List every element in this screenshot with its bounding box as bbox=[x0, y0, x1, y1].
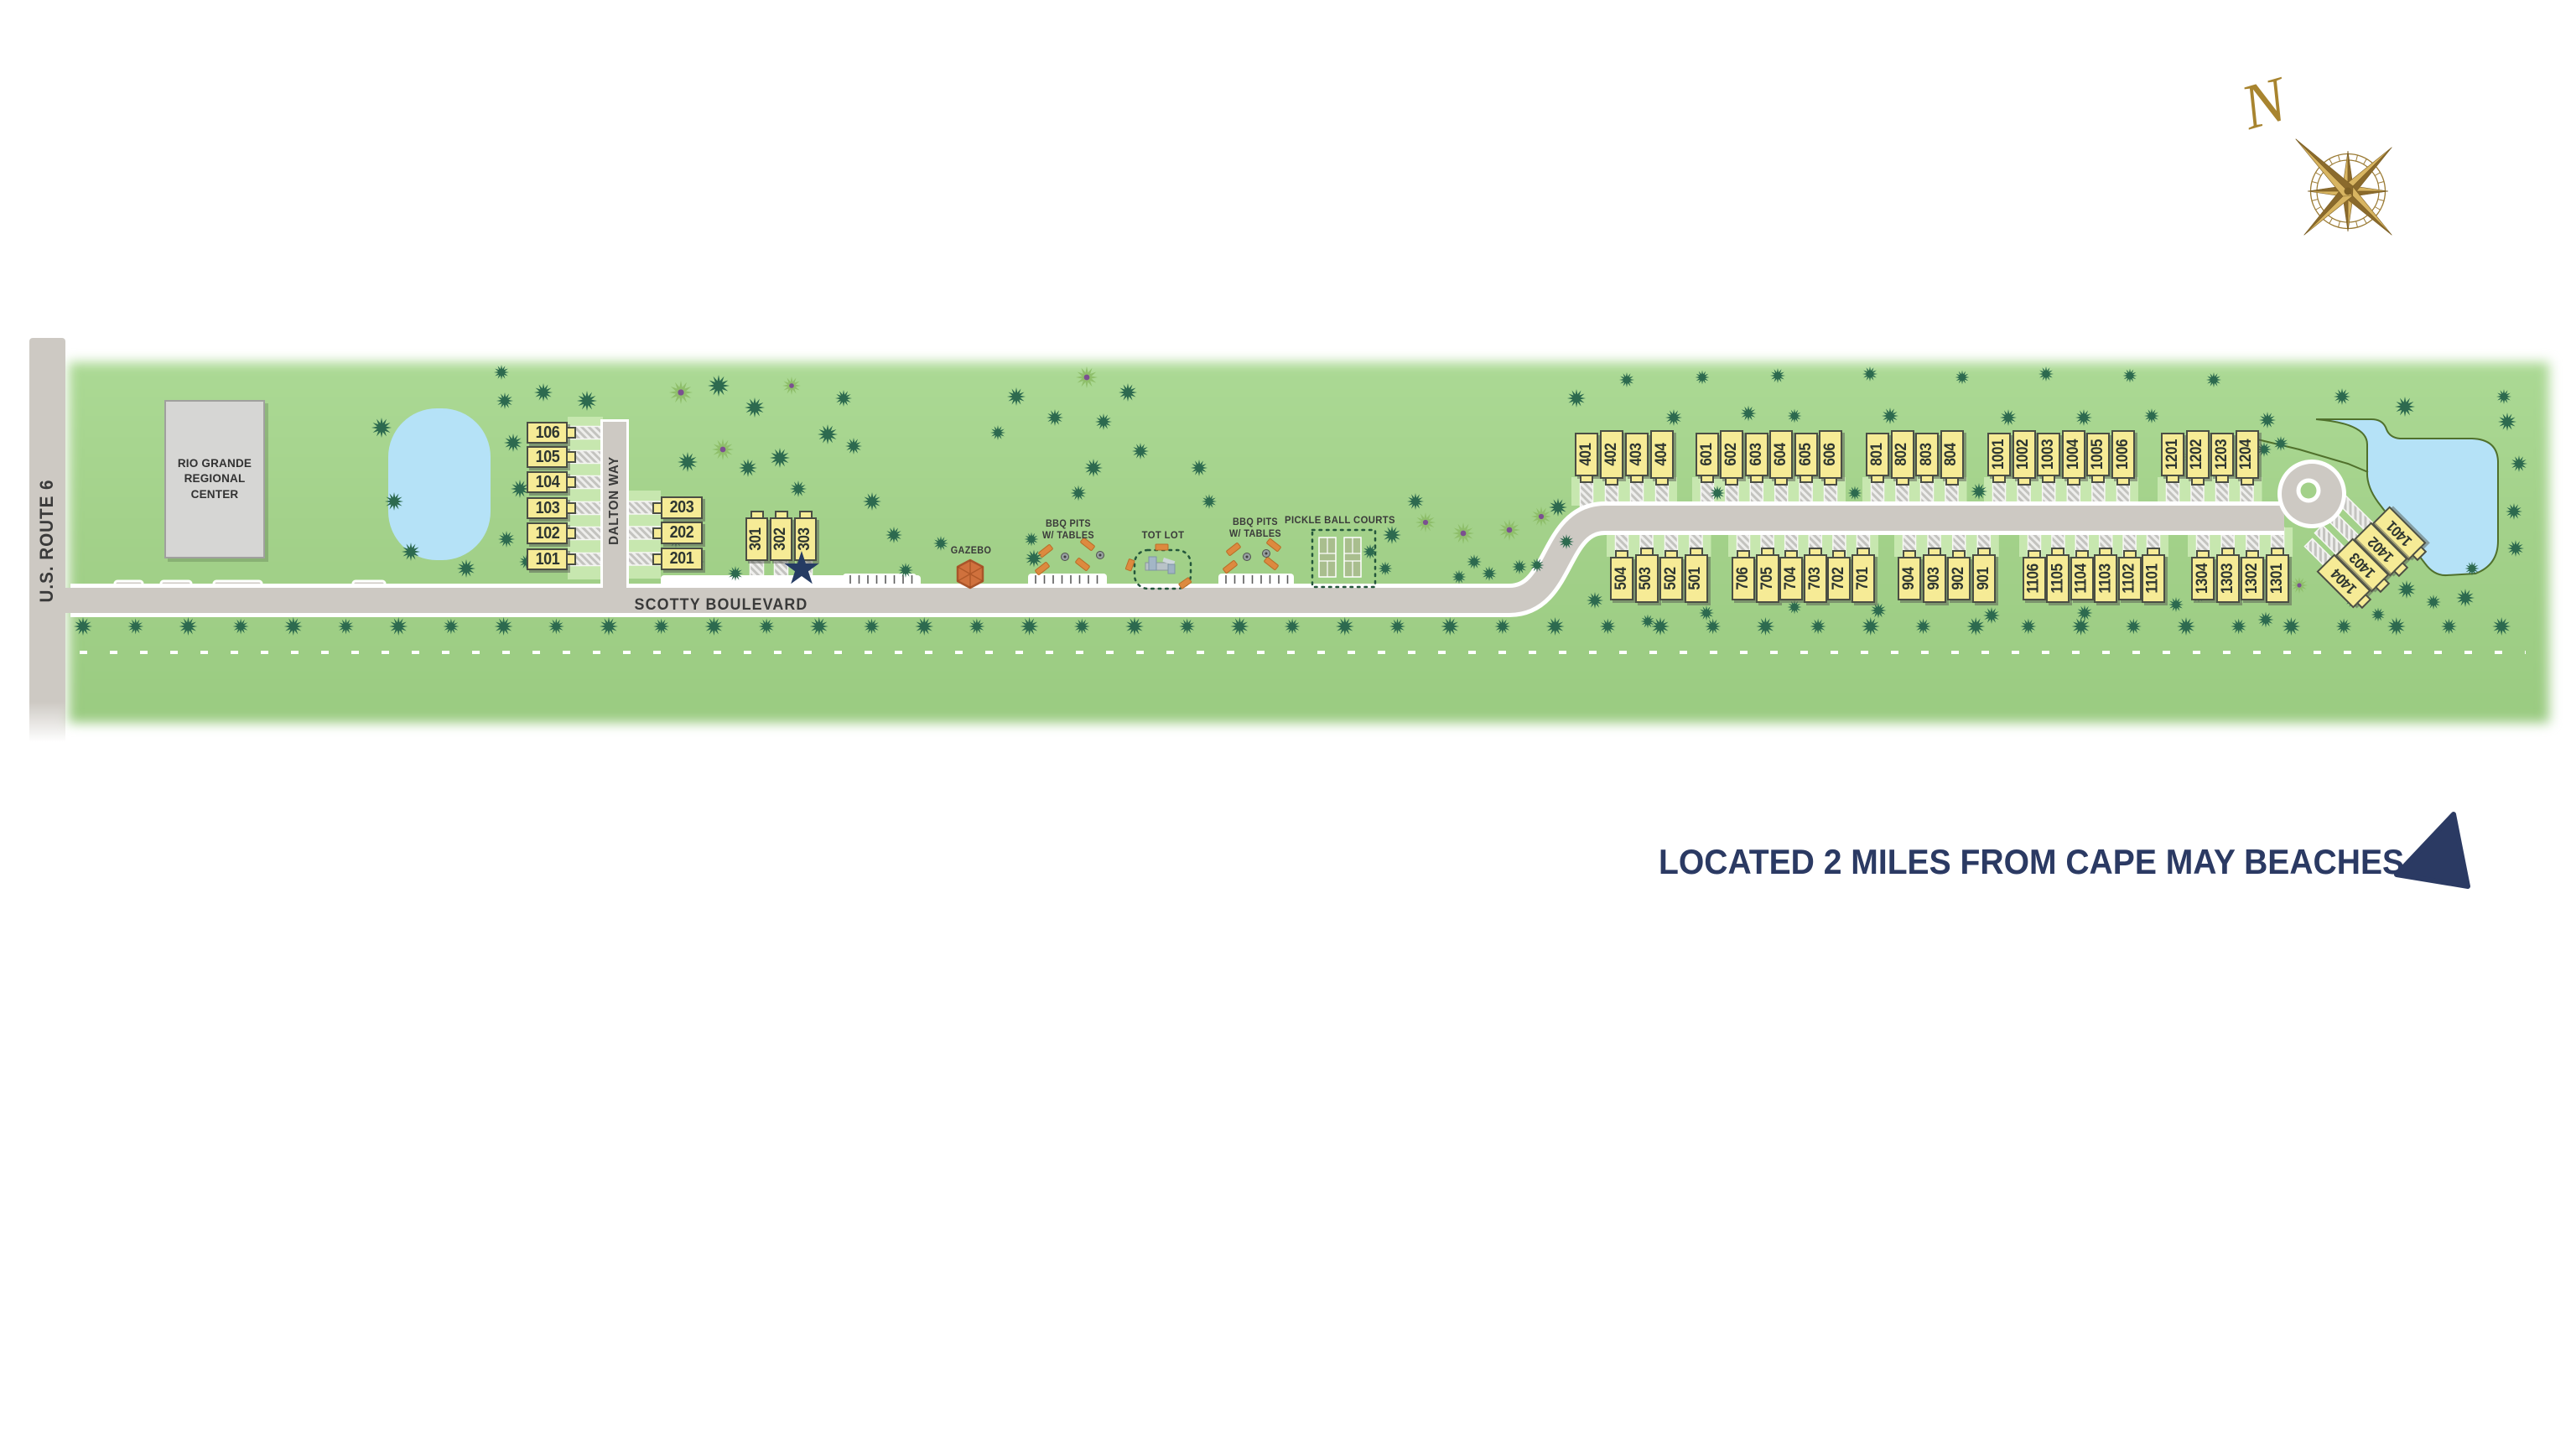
tree-icon bbox=[2258, 612, 2274, 628]
lot-101[interactable]: 101 bbox=[527, 548, 568, 570]
tree-icon bbox=[2496, 389, 2511, 404]
building-label: RIO GRANDE bbox=[178, 456, 252, 471]
tree-icon bbox=[1871, 603, 1887, 619]
lot-501[interactable]: 501 bbox=[1685, 554, 1708, 603]
lot-706[interactable]: 706 bbox=[1732, 557, 1755, 600]
lot-504[interactable]: 504 bbox=[1610, 557, 1633, 600]
lot-702[interactable]: 702 bbox=[1827, 557, 1851, 600]
tree-icon bbox=[845, 438, 862, 454]
tree-icon bbox=[739, 459, 757, 477]
tree-icon bbox=[2397, 580, 2416, 599]
lot-number: 1102 bbox=[2121, 563, 2139, 593]
lot-1204[interactable]: 1204 bbox=[2236, 430, 2259, 479]
tree-icon bbox=[2126, 619, 2142, 635]
lot-number: 903 bbox=[1925, 567, 1944, 589]
lot-503[interactable]: 503 bbox=[1635, 554, 1659, 603]
tree-icon bbox=[745, 397, 765, 418]
lot-601[interactable]: 601 bbox=[1696, 433, 1719, 476]
tree-icon bbox=[1512, 559, 1527, 574]
tree-icon bbox=[389, 617, 408, 636]
tree-icon bbox=[371, 418, 392, 438]
tree-icon bbox=[2511, 455, 2527, 472]
pond bbox=[388, 408, 491, 560]
tree-icon bbox=[2257, 442, 2272, 457]
tree-icon bbox=[1966, 617, 1985, 636]
pickleball-courts-label: PICKLE BALL COURTS bbox=[1285, 514, 1395, 526]
gazebo-label: GAZEBO bbox=[951, 546, 992, 556]
lot-1302[interactable]: 1302 bbox=[2241, 557, 2264, 600]
lot-number: 1302 bbox=[2243, 563, 2262, 594]
tree-icon bbox=[1915, 619, 1931, 635]
lot-number: 801 bbox=[1868, 443, 1887, 465]
tree-icon bbox=[759, 619, 775, 635]
tree-icon bbox=[678, 452, 698, 472]
tree-icon bbox=[2441, 619, 2457, 635]
tree-icon bbox=[864, 619, 880, 635]
tree-icon bbox=[2395, 397, 2415, 417]
tree-icon bbox=[1119, 383, 1137, 402]
lot-202[interactable]: 202 bbox=[661, 522, 703, 544]
lot-number: 701 bbox=[1854, 567, 1872, 589]
tree-icon bbox=[127, 619, 143, 635]
tree-icon bbox=[1452, 570, 1467, 584]
tree-icon bbox=[2038, 366, 2054, 382]
lot-602[interactable]: 602 bbox=[1720, 430, 1743, 479]
tree-icon bbox=[1665, 409, 1682, 426]
tree-icon bbox=[1696, 371, 1710, 385]
tree-icon bbox=[2259, 412, 2276, 428]
lot-number: 901 bbox=[1975, 567, 1993, 589]
lot-number: 1202 bbox=[2189, 439, 2207, 470]
tree-icon bbox=[600, 617, 618, 636]
lot-number: 404 bbox=[1653, 443, 1671, 465]
tree-icon bbox=[2020, 619, 2036, 635]
tree-icon bbox=[2282, 617, 2300, 636]
bbq-pits-label: BBQ PITS W/ TABLES bbox=[1229, 517, 1281, 541]
tree-icon bbox=[498, 531, 515, 548]
bbq-pits-icon bbox=[1035, 538, 1104, 575]
cul-de-sac-island bbox=[2301, 483, 2317, 499]
lot-802[interactable]: 802 bbox=[1891, 430, 1914, 479]
tree-icon bbox=[1848, 486, 1862, 501]
tree-icon bbox=[818, 424, 838, 444]
lot-1105[interactable]: 1105 bbox=[2046, 554, 2070, 603]
tree-icon bbox=[810, 617, 828, 636]
lot-903[interactable]: 903 bbox=[1923, 554, 1946, 603]
lot-703[interactable]: 703 bbox=[1804, 554, 1827, 603]
tree-icon bbox=[233, 619, 249, 635]
bbq-pits-label: BBQ PITS W/ TABLES bbox=[1042, 519, 1094, 543]
compass-rose-icon bbox=[2291, 134, 2397, 240]
lot-number: 1201 bbox=[2163, 439, 2182, 470]
tree-icon bbox=[1619, 372, 1634, 387]
tot-lot-icon bbox=[1125, 544, 1192, 589]
lot-1301[interactable]: 1301 bbox=[2266, 554, 2289, 603]
lot-number: 502 bbox=[1662, 567, 1680, 589]
lot-103[interactable]: 103 bbox=[527, 497, 568, 519]
lot-number: 603 bbox=[1748, 443, 1766, 465]
tree-icon bbox=[1770, 368, 1785, 383]
lot-number: 501 bbox=[1687, 567, 1706, 589]
tree-icon bbox=[1407, 493, 1424, 510]
lot-701[interactable]: 701 bbox=[1851, 554, 1875, 603]
lot-201[interactable]: 201 bbox=[661, 548, 703, 570]
lot-number: 402 bbox=[1602, 443, 1621, 465]
site-map: RIO GRANDE REGIONAL CENTER 1061051041031… bbox=[0, 0, 2576, 1449]
lot-number: 106 bbox=[535, 423, 559, 443]
tree-icon bbox=[457, 559, 475, 578]
arrow-right-icon bbox=[2397, 814, 2468, 886]
lot-number: 203 bbox=[670, 498, 694, 517]
us-route-6-label: U.S. ROUTE 6 bbox=[36, 480, 58, 603]
lot-801[interactable]: 801 bbox=[1866, 433, 1889, 476]
lot-502[interactable]: 502 bbox=[1659, 557, 1683, 600]
tree-icon bbox=[548, 619, 564, 635]
lot-902[interactable]: 902 bbox=[1947, 557, 1971, 600]
lot-number: 101 bbox=[535, 550, 559, 569]
lot-number: 102 bbox=[535, 524, 559, 543]
tree-icon bbox=[1285, 619, 1301, 635]
tree-icon bbox=[2273, 436, 2288, 451]
tree-icon bbox=[2077, 605, 2093, 621]
tree-icon bbox=[2000, 409, 2017, 426]
lot-104[interactable]: 104 bbox=[527, 471, 568, 493]
lot-203[interactable]: 203 bbox=[661, 496, 703, 519]
lot-1104[interactable]: 1104 bbox=[2070, 557, 2094, 600]
tree-icon bbox=[915, 617, 933, 636]
lot-106[interactable]: 106 bbox=[527, 422, 568, 444]
tree-icon bbox=[1379, 562, 1393, 576]
tree-icon bbox=[2387, 617, 2406, 636]
tree-icon bbox=[863, 492, 881, 511]
lot-105[interactable]: 105 bbox=[527, 446, 568, 468]
building-label: REGIONAL bbox=[178, 471, 252, 486]
pickleball-courts-icon bbox=[1312, 530, 1375, 587]
dalton-way-label: DALTON WAY bbox=[607, 456, 622, 545]
lot-number: 1005 bbox=[2089, 439, 2107, 470]
tree-icon bbox=[284, 617, 303, 636]
tree-icon bbox=[1383, 526, 1401, 544]
tree-icon bbox=[704, 617, 723, 636]
tree-icon bbox=[534, 383, 553, 402]
lot-number: 104 bbox=[535, 473, 559, 492]
tree-icon bbox=[1810, 619, 1826, 635]
lot-number: 1105 bbox=[2049, 563, 2067, 593]
tree-icon bbox=[2168, 597, 2184, 612]
lot-401[interactable]: 401 bbox=[1575, 433, 1598, 476]
lot-number: 103 bbox=[535, 499, 559, 518]
tree-icon bbox=[1741, 406, 1757, 422]
tree-icon bbox=[1788, 600, 1802, 615]
tree-icon bbox=[1074, 619, 1090, 635]
tree-icon bbox=[708, 375, 730, 397]
tree-icon bbox=[2498, 413, 2516, 431]
lot-number: 802 bbox=[1893, 443, 1912, 465]
tree-icon bbox=[1191, 460, 1207, 476]
tree-icon bbox=[2177, 617, 2195, 636]
lot-number: 1104 bbox=[2073, 563, 2091, 593]
tree-icon bbox=[1955, 371, 1970, 385]
tree-icon bbox=[933, 536, 948, 551]
lot-number: 902 bbox=[1950, 567, 1968, 589]
tree-icon bbox=[577, 391, 597, 411]
tree-icon bbox=[179, 617, 197, 636]
lot-number: 401 bbox=[1577, 443, 1596, 465]
tree-icon bbox=[1071, 486, 1087, 501]
lot-number: 605 bbox=[1797, 443, 1815, 465]
lot-1304[interactable]: 1304 bbox=[2191, 557, 2215, 600]
lot-1202[interactable]: 1202 bbox=[2186, 430, 2210, 479]
tree-icon bbox=[1699, 605, 1714, 621]
lot-803[interactable]: 803 bbox=[1915, 433, 1939, 476]
tree-icon bbox=[2206, 372, 2221, 387]
lot-number: 1303 bbox=[2219, 563, 2237, 594]
lot-number: 1001 bbox=[1990, 439, 2008, 470]
featured-lot-star-icon bbox=[782, 546, 822, 591]
lot-1201[interactable]: 1201 bbox=[2161, 433, 2184, 476]
lot-1203[interactable]: 1203 bbox=[2210, 433, 2234, 476]
lot-number: 201 bbox=[670, 549, 694, 569]
lot-901[interactable]: 901 bbox=[1972, 554, 1996, 603]
tree-icon bbox=[1467, 554, 1482, 569]
lot-1006[interactable]: 1006 bbox=[2111, 430, 2135, 479]
tree-icon bbox=[496, 392, 513, 409]
tree-icon bbox=[653, 619, 669, 635]
lot-number: 803 bbox=[1918, 443, 1936, 465]
lot-606[interactable]: 606 bbox=[1819, 430, 1842, 479]
tree-icon bbox=[2144, 408, 2159, 423]
lot-number: 602 bbox=[1722, 443, 1741, 465]
tree-icon bbox=[2231, 619, 2246, 635]
tree-icon bbox=[443, 619, 459, 635]
tree-icon bbox=[2426, 595, 2441, 610]
tree-icon bbox=[790, 480, 807, 497]
lot-number: 1301 bbox=[2268, 563, 2287, 594]
tree-icon bbox=[2334, 388, 2350, 405]
lot-number: 702 bbox=[1830, 567, 1848, 589]
lot-number: 1002 bbox=[2015, 439, 2033, 470]
gazebo-icon bbox=[958, 560, 983, 588]
lot-number: 704 bbox=[1782, 567, 1800, 589]
lot-number: 1004 bbox=[2064, 439, 2083, 470]
tree-icon bbox=[1021, 617, 1039, 636]
lot-number: 403 bbox=[1628, 443, 1646, 465]
tree-icon bbox=[1567, 389, 1586, 408]
lot-number: 1006 bbox=[2114, 439, 2132, 470]
lot-number: 706 bbox=[1734, 567, 1753, 589]
tree-icon bbox=[1084, 459, 1103, 477]
tree-icon bbox=[1600, 619, 1616, 635]
tree-icon bbox=[1202, 494, 1217, 509]
lot-number: 1106 bbox=[2025, 563, 2044, 593]
tree-icon bbox=[835, 390, 852, 407]
tree-icon bbox=[1983, 607, 2000, 624]
lot-number: 105 bbox=[535, 448, 559, 467]
tree-icon bbox=[1482, 566, 1497, 581]
tot-lot-label: TOT LOT bbox=[1142, 529, 1185, 541]
lot-number: 1103 bbox=[2096, 563, 2115, 593]
lot-1003[interactable]: 1003 bbox=[2037, 433, 2060, 476]
tree-icon bbox=[885, 527, 902, 543]
lot-605[interactable]: 605 bbox=[1794, 433, 1818, 476]
tree-icon bbox=[1494, 619, 1510, 635]
lot-number: 1003 bbox=[2039, 439, 2058, 470]
tree-icon bbox=[2506, 503, 2522, 520]
tree-icon bbox=[1705, 619, 1721, 635]
lot-301[interactable]: 301 bbox=[745, 517, 768, 561]
lot-number: 604 bbox=[1772, 443, 1790, 465]
tree-icon bbox=[2123, 369, 2137, 383]
tree-icon bbox=[338, 619, 354, 635]
lot-704[interactable]: 704 bbox=[1779, 557, 1803, 600]
tree-icon bbox=[2336, 619, 2352, 635]
lot-number: 904 bbox=[1900, 567, 1919, 589]
tree-icon bbox=[770, 448, 790, 468]
lot-1002[interactable]: 1002 bbox=[2012, 430, 2036, 479]
rio-grande-regional-center-building: RIO GRANDE REGIONAL CENTER bbox=[164, 400, 265, 558]
lot-102[interactable]: 102 bbox=[527, 522, 568, 544]
tree-icon bbox=[1230, 617, 1249, 636]
tree-icon bbox=[494, 365, 509, 380]
tree-icon bbox=[1756, 617, 1774, 636]
tree-icon bbox=[1336, 617, 1354, 636]
tree-icon bbox=[1788, 409, 1802, 423]
tree-icon bbox=[1125, 617, 1144, 636]
lot-number: 601 bbox=[1698, 443, 1716, 465]
tree-icon bbox=[1095, 413, 1112, 430]
lot-number: 504 bbox=[1613, 567, 1631, 589]
tree-icon bbox=[2072, 617, 2090, 636]
tree-icon bbox=[495, 617, 513, 636]
lot-1004[interactable]: 1004 bbox=[2062, 430, 2085, 479]
tree-icon bbox=[504, 434, 522, 452]
tree-icon bbox=[1025, 532, 1039, 547]
scotty-boulevard-label: SCOTTY BOULEVARD bbox=[635, 596, 808, 615]
tree-icon bbox=[1549, 498, 1567, 517]
lot-1001[interactable]: 1001 bbox=[1987, 433, 2011, 476]
tree-icon bbox=[2075, 409, 2092, 426]
tree-icon bbox=[1862, 366, 1877, 382]
lot-number: 705 bbox=[1758, 567, 1777, 589]
lot-804[interactable]: 804 bbox=[1940, 430, 1964, 479]
lot-1101[interactable]: 1101 bbox=[2142, 554, 2165, 603]
lot-404[interactable]: 404 bbox=[1650, 430, 1674, 479]
tree-icon bbox=[1046, 409, 1063, 426]
lot-402[interactable]: 402 bbox=[1600, 430, 1623, 479]
lot-number: 703 bbox=[1806, 567, 1825, 589]
lot-1102[interactable]: 1102 bbox=[2118, 557, 2142, 600]
tree-icon bbox=[2456, 589, 2475, 607]
tree-icon bbox=[2507, 540, 2524, 557]
lot-1106[interactable]: 1106 bbox=[2023, 557, 2046, 600]
tree-icon bbox=[2371, 608, 2386, 622]
lot-705[interactable]: 705 bbox=[1756, 554, 1779, 603]
lot-number: 503 bbox=[1638, 567, 1656, 589]
tagline: LOCATED 2 MILES FROM CAPE MAY BEACHES bbox=[1659, 842, 2404, 882]
tree-icon bbox=[1651, 617, 1670, 636]
building-label: CENTER bbox=[178, 487, 252, 502]
tree-icon bbox=[74, 617, 92, 636]
lot-number: 1204 bbox=[2238, 439, 2257, 470]
tree-icon bbox=[1179, 619, 1195, 635]
lot-1103[interactable]: 1103 bbox=[2094, 554, 2117, 603]
lot-904[interactable]: 904 bbox=[1898, 557, 1921, 600]
tree-icon bbox=[2492, 617, 2511, 636]
bbq-pits-icon bbox=[1223, 538, 1281, 574]
tree-icon bbox=[1862, 617, 1880, 636]
tree-icon bbox=[1587, 592, 1603, 609]
lot-403[interactable]: 403 bbox=[1625, 433, 1649, 476]
lot-604[interactable]: 604 bbox=[1769, 430, 1793, 479]
tree-icon bbox=[1132, 443, 1149, 460]
tree-icon bbox=[969, 619, 984, 635]
tree-icon bbox=[1441, 617, 1459, 636]
tree-icon bbox=[1546, 617, 1565, 636]
tree-icon bbox=[1007, 387, 1026, 406]
lot-603[interactable]: 603 bbox=[1745, 433, 1768, 476]
lot-number: 202 bbox=[670, 523, 694, 543]
tree-icon bbox=[1882, 408, 1898, 424]
lot-1303[interactable]: 1303 bbox=[2216, 554, 2240, 603]
map-graphics bbox=[0, 0, 2576, 1449]
tree-icon bbox=[990, 425, 1005, 440]
lot-number: 1304 bbox=[2194, 563, 2212, 594]
tree-icon bbox=[1389, 619, 1405, 635]
lot-number: 606 bbox=[1821, 443, 1840, 465]
lot-number: 301 bbox=[748, 527, 766, 550]
lot-number: 1101 bbox=[2144, 563, 2163, 593]
lot-number: 1203 bbox=[2213, 439, 2231, 470]
lot-number: 804 bbox=[1943, 443, 1961, 465]
lot-1005[interactable]: 1005 bbox=[2086, 433, 2110, 476]
